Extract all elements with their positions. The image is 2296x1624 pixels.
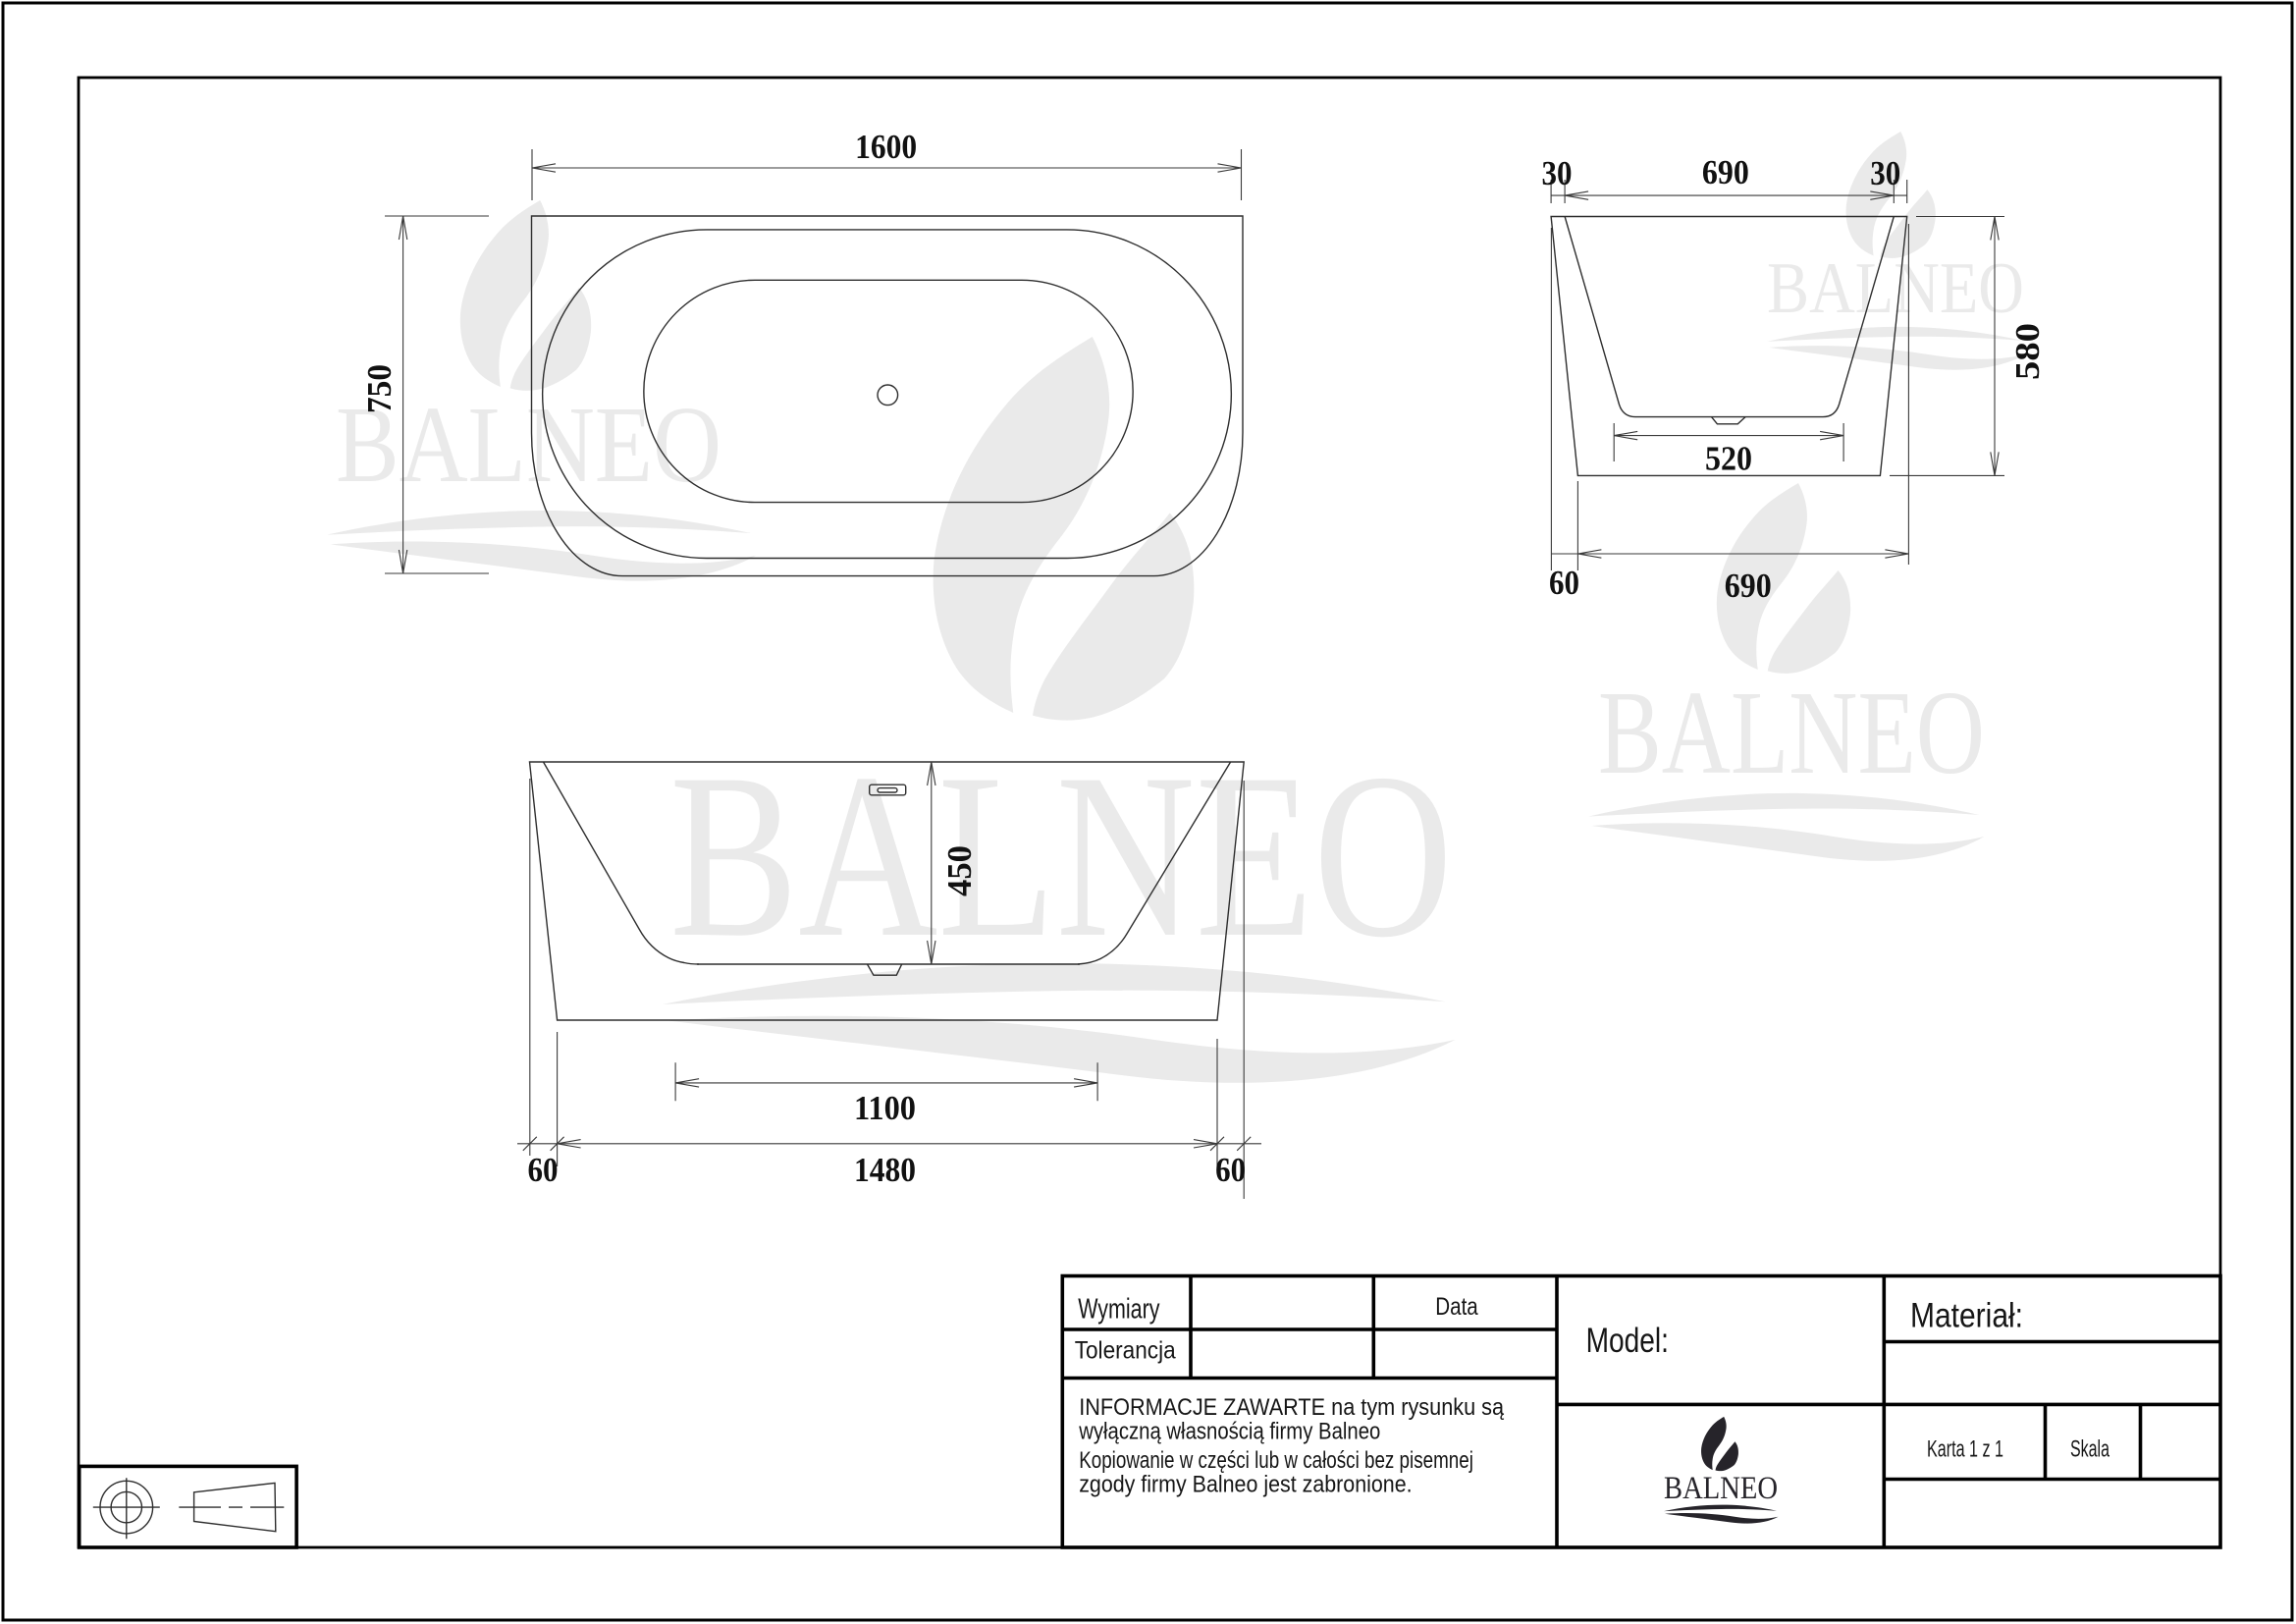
svg-text:60: 60 [1215,1151,1246,1189]
svg-text:Materiał:: Materiał: [1910,1297,2023,1335]
svg-text:690: 690 [1725,567,1772,605]
svg-text:Model:: Model: [1586,1322,1669,1360]
svg-text:580: 580 [2008,323,2047,380]
svg-text:Tolerancja: Tolerancja [1075,1337,1176,1365]
svg-text:wyłączną własnością firmy Baln: wyłączną własnością firmy Balneo [1078,1419,1380,1445]
svg-text:Kopiowanie w części lub w cało: Kopiowanie w części lub w całości bez pi… [1079,1447,1473,1474]
svg-text:60: 60 [528,1151,559,1189]
svg-text:690: 690 [1702,153,1749,191]
svg-text:1480: 1480 [854,1151,916,1189]
svg-text:750: 750 [360,364,399,413]
svg-text:Skala: Skala [2070,1436,2109,1463]
svg-text:INFORMACJE ZAWARTE na tym rysu: INFORMACJE ZAWARTE na tym rysunku są [1079,1394,1504,1421]
svg-text:60: 60 [1549,564,1579,602]
svg-text:520: 520 [1705,440,1752,478]
svg-text:30: 30 [1870,154,1900,192]
svg-text:30: 30 [1542,154,1573,192]
svg-text:Karta 1 z 1: Karta 1 z 1 [1927,1436,2003,1463]
svg-text:Wymiary: Wymiary [1078,1294,1160,1326]
svg-text:Data: Data [1435,1293,1478,1321]
svg-text:zgody firmy Balneo jest zabron: zgody firmy Balneo jest zabronione. [1079,1472,1412,1498]
svg-text:1600: 1600 [855,128,917,166]
svg-text:1100: 1100 [854,1089,916,1127]
svg-text:450: 450 [940,845,979,896]
